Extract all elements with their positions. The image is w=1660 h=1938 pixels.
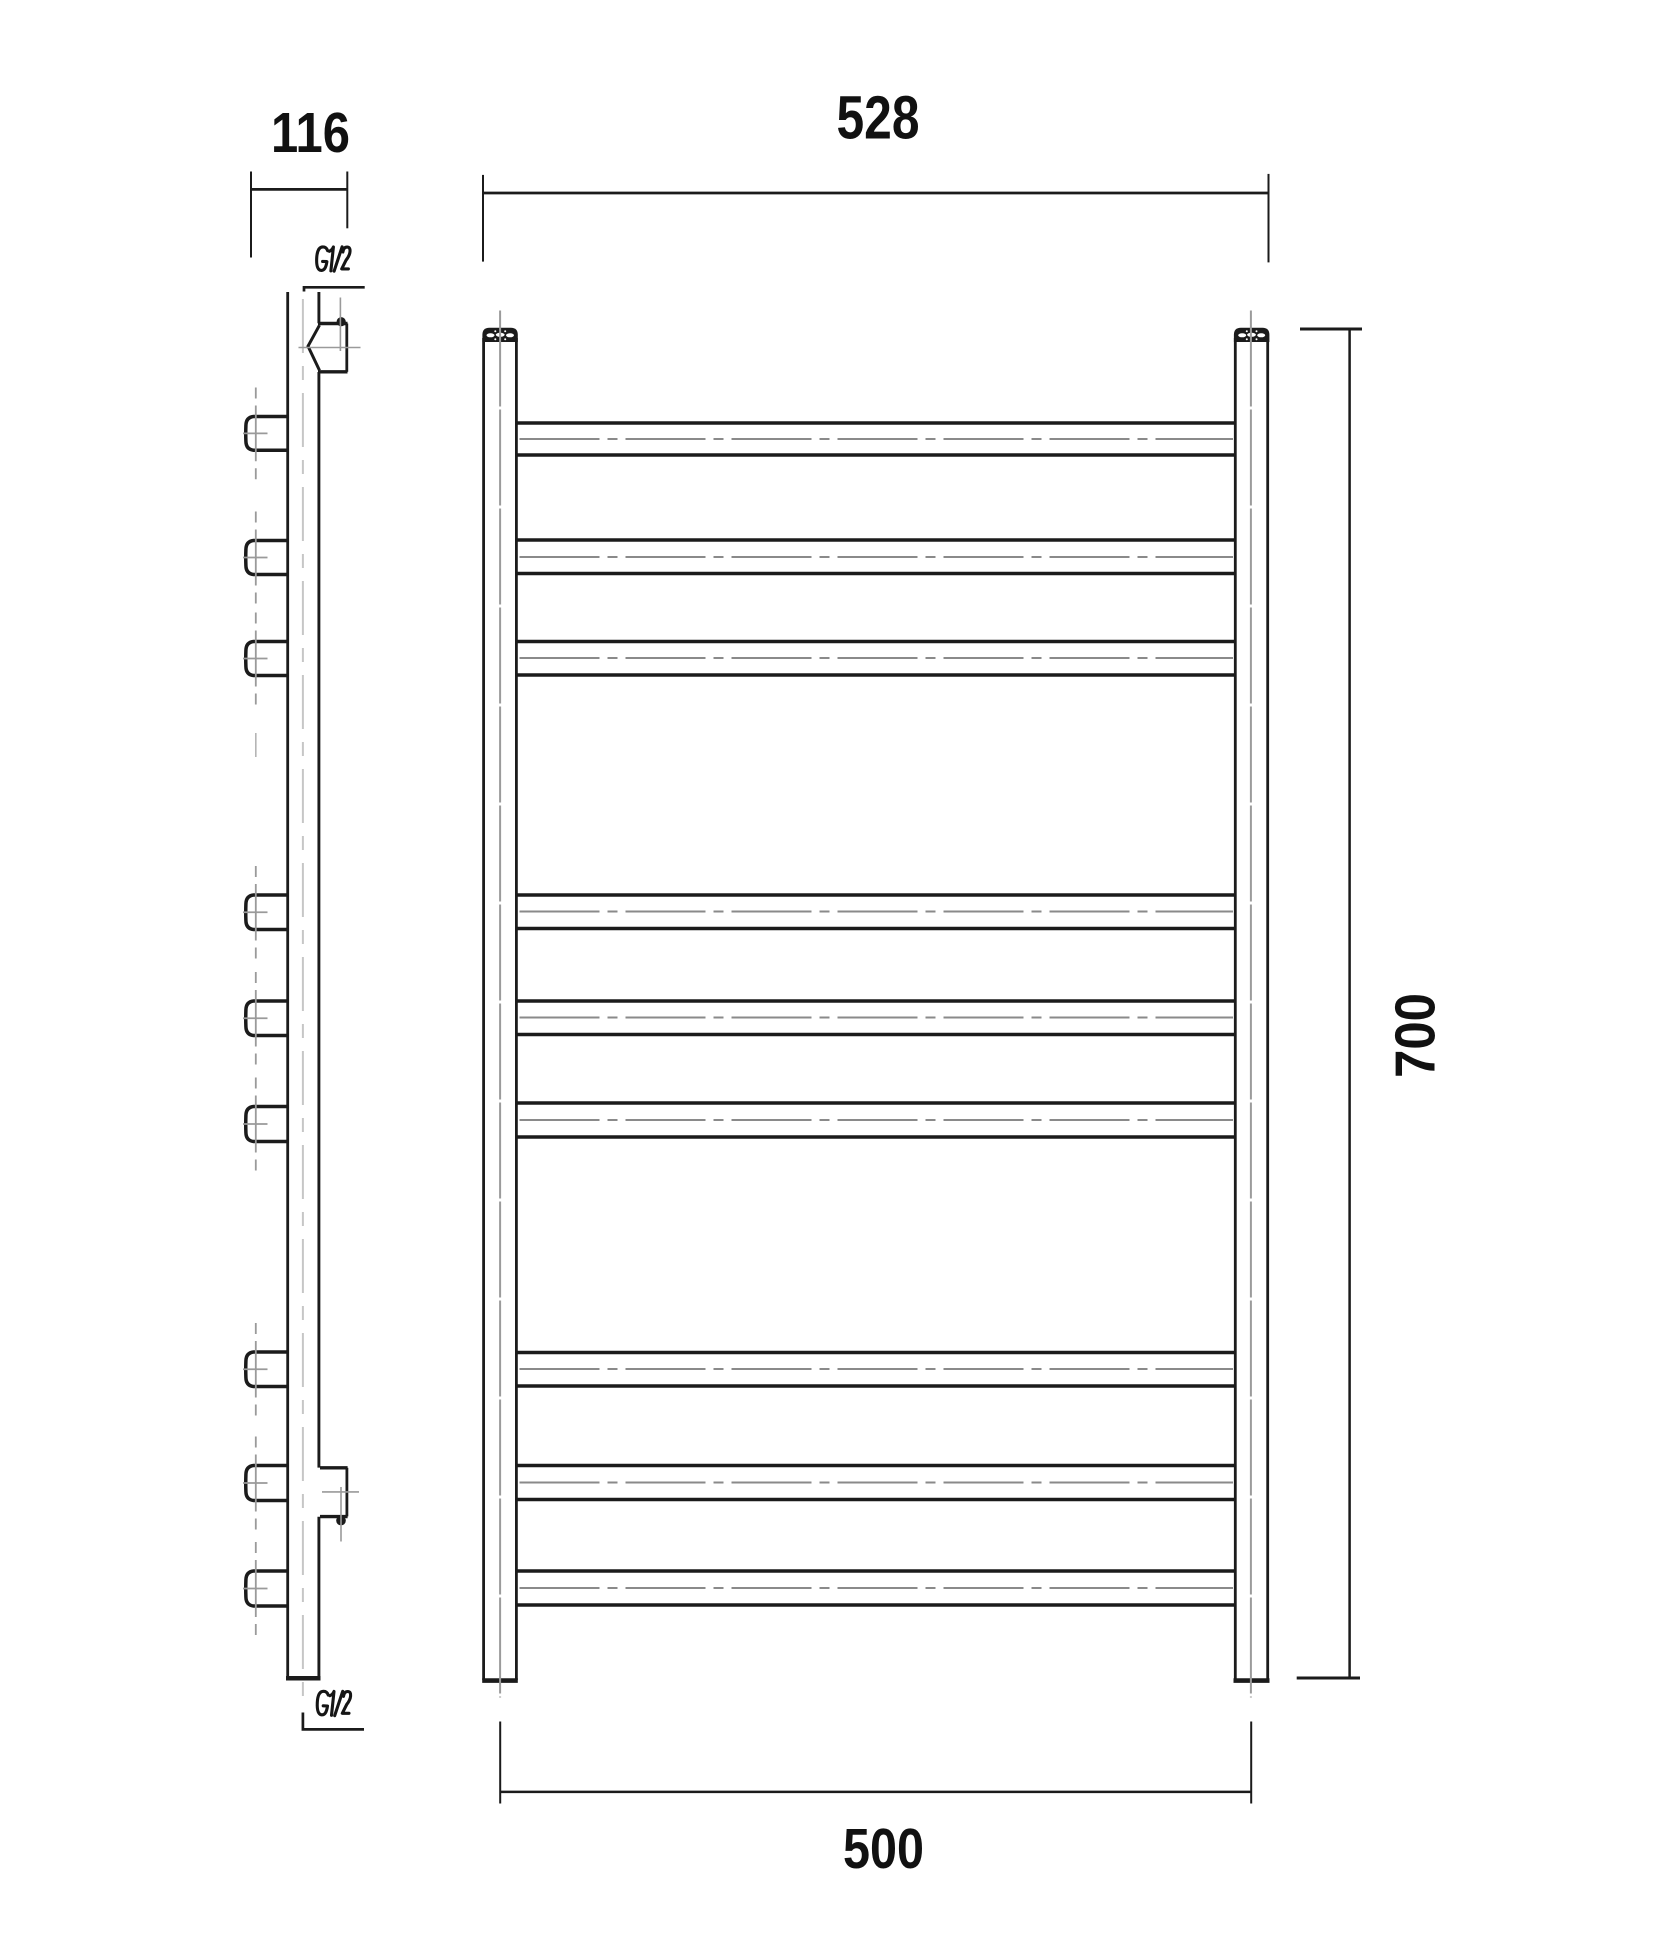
svg-text:500: 500 — [843, 1817, 924, 1881]
svg-text:116: 116 — [271, 101, 350, 165]
svg-text:528: 528 — [837, 84, 920, 152]
svg-text:700: 700 — [1384, 993, 1448, 1078]
